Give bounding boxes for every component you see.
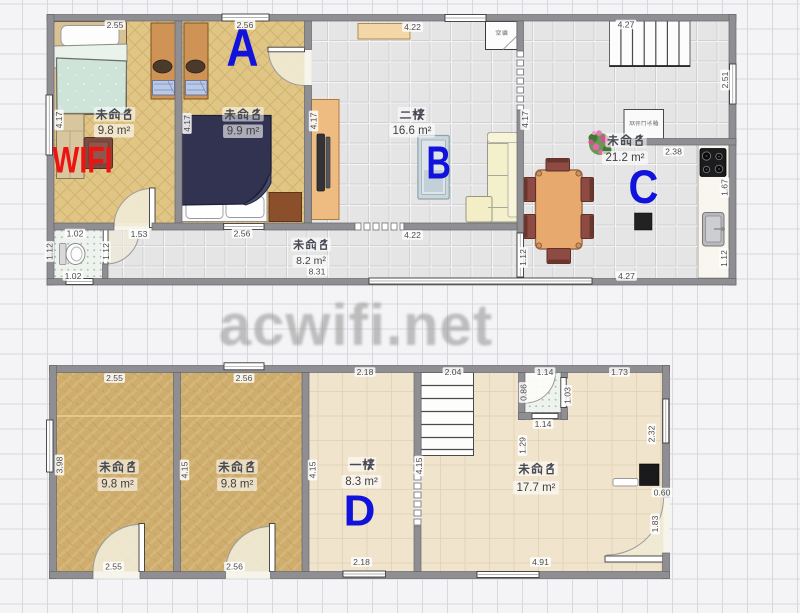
svg-text:acwifi.net: acwifi.net [219, 293, 493, 358]
svg-text:4.17: 4.17 [520, 111, 530, 128]
svg-text:1.12: 1.12 [45, 243, 55, 260]
svg-text:4.22: 4.22 [404, 22, 421, 32]
svg-text:2.18: 2.18 [357, 367, 374, 377]
svg-text:0.60: 0.60 [654, 488, 671, 498]
svg-text:1.12: 1.12 [719, 250, 729, 267]
svg-text:2.51: 2.51 [720, 71, 730, 88]
svg-text:1.29: 1.29 [518, 437, 528, 454]
svg-text:4.91: 4.91 [532, 557, 549, 567]
svg-text:9.9 m²: 9.9 m² [227, 126, 260, 138]
svg-text:2.56: 2.56 [236, 373, 253, 383]
svg-text:WIFI: WIFI [52, 139, 112, 180]
svg-text:2.56: 2.56 [226, 562, 243, 572]
svg-text:4.17: 4.17 [54, 111, 64, 128]
svg-text:1.67: 1.67 [720, 179, 730, 196]
svg-text:2.55: 2.55 [106, 373, 123, 383]
svg-text:1.03: 1.03 [563, 387, 573, 404]
svg-text:9.8 m²: 9.8 m² [101, 479, 134, 491]
svg-text:1.02: 1.02 [65, 271, 82, 281]
svg-text:3.98: 3.98 [55, 456, 65, 473]
svg-text:4.15: 4.15 [308, 461, 318, 478]
svg-text:1.12: 1.12 [518, 249, 528, 266]
svg-text:2.04: 2.04 [445, 367, 462, 377]
svg-text:2.32: 2.32 [647, 425, 657, 442]
svg-text:4.27: 4.27 [618, 20, 635, 30]
svg-text:1.02: 1.02 [67, 229, 84, 239]
svg-text:1.53: 1.53 [131, 229, 148, 239]
svg-text:B: B [426, 136, 451, 188]
svg-text:4.17: 4.17 [182, 115, 192, 132]
svg-text:16.6 m²: 16.6 m² [393, 125, 432, 137]
svg-text:2.55: 2.55 [107, 20, 124, 30]
svg-text:8.31: 8.31 [309, 267, 326, 277]
svg-text:C: C [629, 162, 659, 214]
svg-text:9.8 m²: 9.8 m² [98, 125, 131, 137]
svg-text:2.38: 2.38 [665, 147, 682, 157]
svg-text:1.12: 1.12 [101, 243, 111, 260]
svg-text:2.18: 2.18 [353, 557, 370, 567]
svg-text:1.73: 1.73 [611, 367, 628, 377]
svg-text:D: D [344, 487, 376, 536]
svg-text:1.14: 1.14 [537, 367, 554, 377]
svg-text:4.22: 4.22 [404, 230, 421, 240]
svg-text:0.86: 0.86 [519, 384, 529, 401]
svg-text:4.15: 4.15 [414, 457, 424, 474]
svg-text:2.56: 2.56 [234, 229, 251, 239]
svg-text:2.55: 2.55 [105, 562, 122, 572]
svg-text:A: A [226, 19, 258, 77]
svg-text:4.17: 4.17 [309, 112, 319, 129]
svg-text:9.8 m²: 9.8 m² [221, 479, 254, 491]
svg-text:17.7 m²: 17.7 m² [517, 482, 556, 494]
svg-text:4.27: 4.27 [618, 271, 635, 281]
svg-text:4.15: 4.15 [180, 461, 190, 478]
svg-text:8.2 m²: 8.2 m² [296, 255, 326, 267]
svg-text:1.14: 1.14 [535, 419, 552, 429]
svg-text:1.83: 1.83 [650, 515, 660, 532]
